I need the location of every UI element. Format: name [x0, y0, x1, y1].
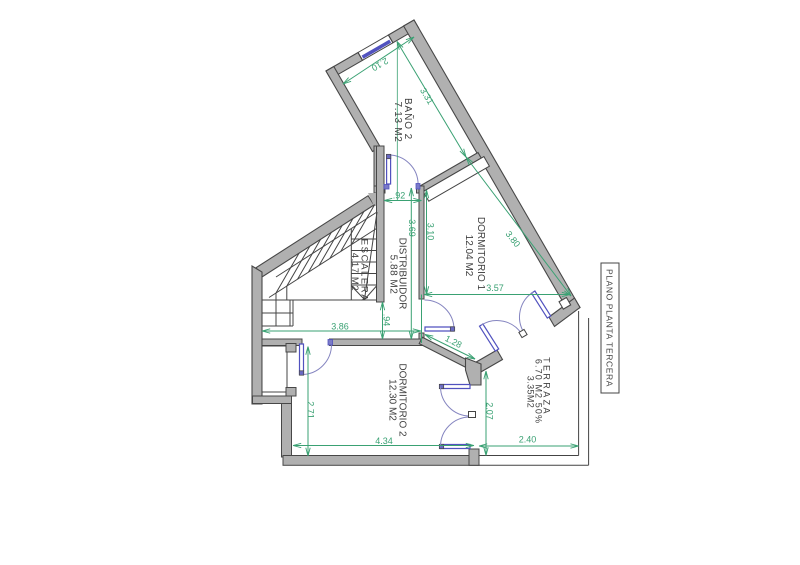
svg-text:DORMITORIO 1: DORMITORIO 1: [475, 217, 486, 291]
svg-text:12.04 M2: 12.04 M2: [463, 235, 474, 277]
svg-text:3.35M2: 3.35M2: [525, 376, 535, 408]
svg-text:2.71: 2.71: [305, 401, 315, 419]
svg-text:2.40: 2.40: [519, 435, 537, 445]
svg-text:12.30 M2: 12.30 M2: [387, 379, 398, 421]
svg-text:3.57: 3.57: [486, 283, 504, 293]
svg-text:7.13 M2: 7.13 M2: [392, 101, 403, 142]
svg-text:.92: .92: [393, 191, 406, 201]
svg-text:3.69: 3.69: [407, 219, 417, 237]
svg-text:4.34: 4.34: [375, 436, 393, 446]
svg-text:.94: .94: [381, 314, 391, 327]
svg-text:3.10: 3.10: [426, 223, 436, 241]
svg-text:2.07: 2.07: [484, 402, 494, 420]
svg-text:5.88 M2: 5.88 M2: [388, 255, 399, 295]
svg-text:PLANO PLANTA TERCERA: PLANO PLANTA TERCERA: [605, 269, 615, 387]
svg-text:3.86: 3.86: [331, 322, 349, 332]
svg-text:4.17 M2: 4.17 M2: [349, 253, 360, 292]
